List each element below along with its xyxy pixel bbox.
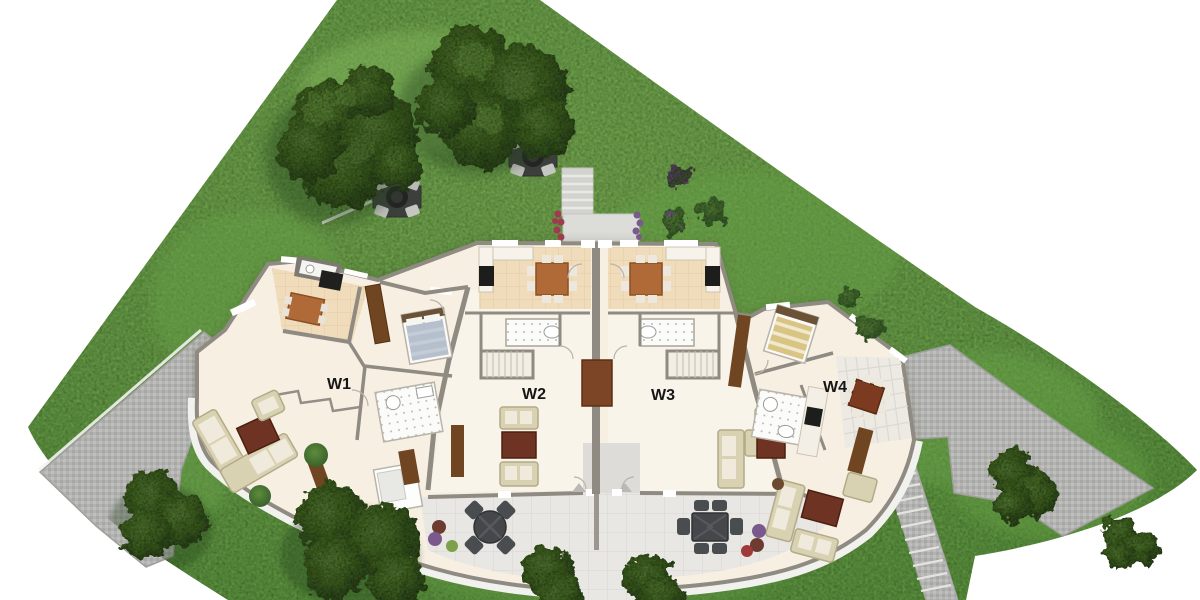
svg-text:W2: W2 <box>522 386 546 403</box>
svg-text:W4: W4 <box>823 379 847 396</box>
svg-text:W3: W3 <box>651 387 675 404</box>
svg-text:W1: W1 <box>327 376 351 393</box>
